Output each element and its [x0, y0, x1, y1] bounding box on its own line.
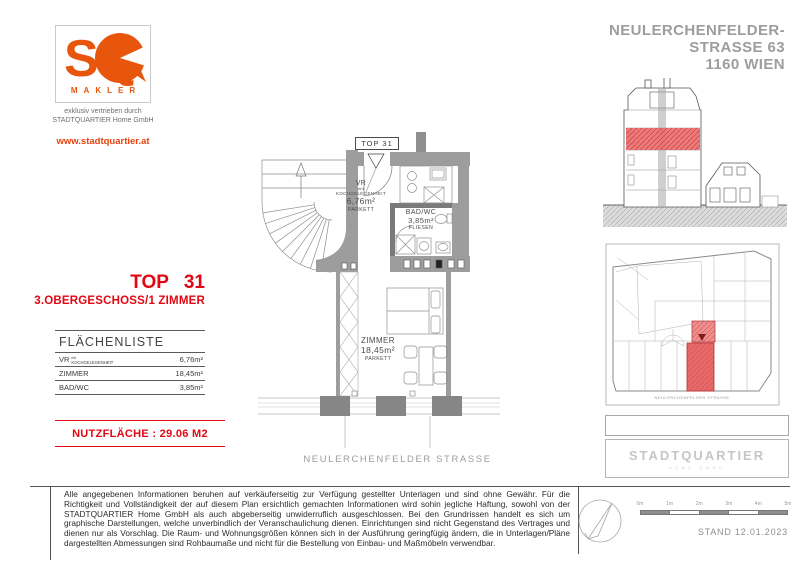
- company-logo-faded: STADTQUARTIER: [606, 448, 788, 463]
- sq-logo-icon: SQ: [56, 26, 150, 88]
- distributed-by-line1: exklusiv vertrieben durch: [30, 108, 176, 115]
- title-line3: 1160 WIEN: [525, 56, 785, 73]
- neighbor-building: [706, 163, 778, 207]
- room-label-bad: BAD/WC 3,85m² FLIESEN: [392, 209, 450, 232]
- building-section-drawing: [600, 78, 790, 235]
- footer-separator: [30, 486, 790, 487]
- room-label-zimmer: ZIMMER 18,45m² PARKETT: [348, 336, 408, 363]
- street-name-label: NEULERCHENFELDER STRASSE: [295, 454, 500, 465]
- logo-makler-text: MAKLER: [55, 86, 151, 95]
- row-label: BAD/WC: [59, 383, 89, 392]
- bed: [387, 288, 443, 334]
- plan-top-marker: TOP 31: [355, 137, 399, 150]
- website-link[interactable]: www.stadtquartier.at: [30, 136, 176, 147]
- row-value: 3,85m²: [180, 383, 203, 392]
- row-label: VRmitKOCHGELEGENHEIT: [59, 355, 113, 364]
- distributed-by-line2: STADTQUARTIER Home GmbH: [30, 117, 176, 124]
- north-compass-icon: [574, 495, 626, 547]
- row-label: ZIMMER: [59, 369, 89, 378]
- row-value: 18,45m²: [175, 369, 203, 378]
- unit-top-label: TOP 31: [40, 272, 205, 294]
- wardrobe: [340, 272, 358, 396]
- scale-bar-segments: [640, 510, 788, 515]
- table-row: BAD/WC 3,85m²: [55, 381, 205, 395]
- table-row: ZIMMER 18,45m²: [55, 367, 205, 381]
- empty-title-box: [605, 415, 789, 436]
- site-plan-drawing: NEULERCHENFELDER STRASSE: [600, 240, 785, 410]
- kitchen-fixtures: [400, 166, 452, 203]
- table-and-chairs: [404, 346, 447, 385]
- disclaimer-text: Alle angegebenen Informationen beruhen a…: [64, 490, 570, 549]
- table-row: VRmitKOCHGELEGENHEIT 6,76m²: [55, 353, 205, 367]
- highlighted-floor: [626, 128, 700, 150]
- plan-date: STAND 12.01.2023: [640, 527, 788, 537]
- scale-bar: 0m 1m 2m 3m 4m 5m: [640, 501, 788, 523]
- unit-floor-label: 3.OBERGESCHOSS/1 ZIMMER: [10, 295, 205, 307]
- nutzflaeche-banner: NUTZFLÄCHE : 29.06 M2: [55, 420, 225, 447]
- title-line1: NEULERCHENFELDER-: [525, 22, 785, 39]
- area-table: FLÄCHENLISTE VRmitKOCHGELEGENHEIT 6,76m²…: [55, 330, 205, 395]
- footer-left-rule: [50, 486, 51, 560]
- siteplan-street-label: NEULERCHENFELDER STRASSE: [654, 395, 729, 400]
- company-logo-box: STADTQUARTIER HOME GMBH: [605, 439, 789, 478]
- street-facade: [258, 391, 500, 448]
- row-value: 6,76m²: [180, 355, 203, 364]
- company-logo-sub: HOME GMBH: [606, 465, 788, 470]
- plan-sheet: SQ MAKLER exklusiv vertrieben durch STAD…: [0, 0, 800, 565]
- page-title: NEULERCHENFELDER- STRASSE 63 1160 WIEN: [525, 22, 785, 73]
- area-table-title: FLÄCHENLISTE: [55, 330, 205, 353]
- title-line2: STRASSE 63: [525, 39, 785, 56]
